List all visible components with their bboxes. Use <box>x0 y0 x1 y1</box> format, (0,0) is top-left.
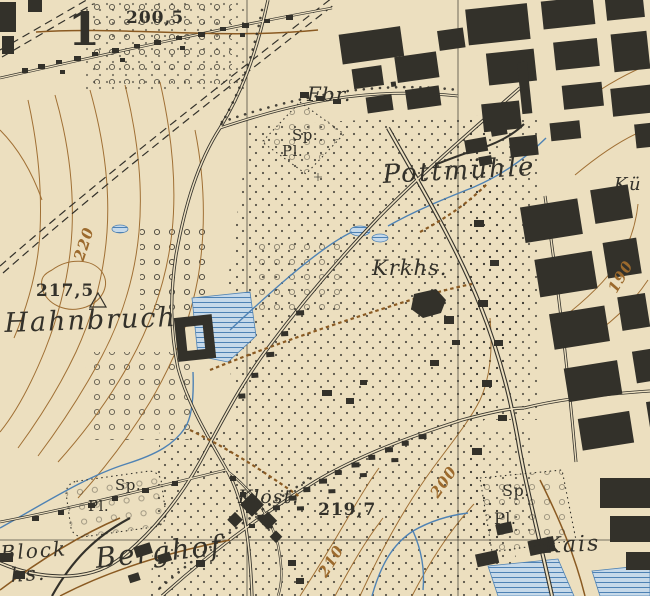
label-spot-height-south: 219,7 <box>318 502 376 519</box>
label-kais: Kais <box>544 533 601 558</box>
label-kloster: Klost. <box>238 488 299 507</box>
label-pottmuehle: Pottmühle <box>382 154 536 188</box>
label-place-southwest: Pl. <box>88 499 109 514</box>
label-blockhouse-1: Block <box>0 538 68 563</box>
label-blockhouse-2: hs. <box>10 563 47 585</box>
label-sports-southeast: Sp. <box>502 483 530 499</box>
label-hospital: Krkhs. <box>372 258 447 279</box>
label-sports-southwest: Sp. <box>115 478 141 493</box>
label-spot-height-west: 217,5 <box>36 283 94 300</box>
label-grid-number: 1 <box>68 6 101 52</box>
label-sports-top: Sp. <box>292 128 318 143</box>
label-place-top: Pl. <box>282 144 303 159</box>
label-place-southeast: Pl. <box>494 511 516 527</box>
label-factory: Fbr. <box>307 84 351 104</box>
topographic-map: 1 200,5 Fbr. Sp. Pl. Pottmühle Krkhs. 22… <box>0 0 650 596</box>
label-spot-height-top: 200,5 <box>126 10 184 27</box>
label-hahnbruch: Hahnbruch <box>4 304 177 337</box>
label-kue: Kü <box>614 176 643 194</box>
